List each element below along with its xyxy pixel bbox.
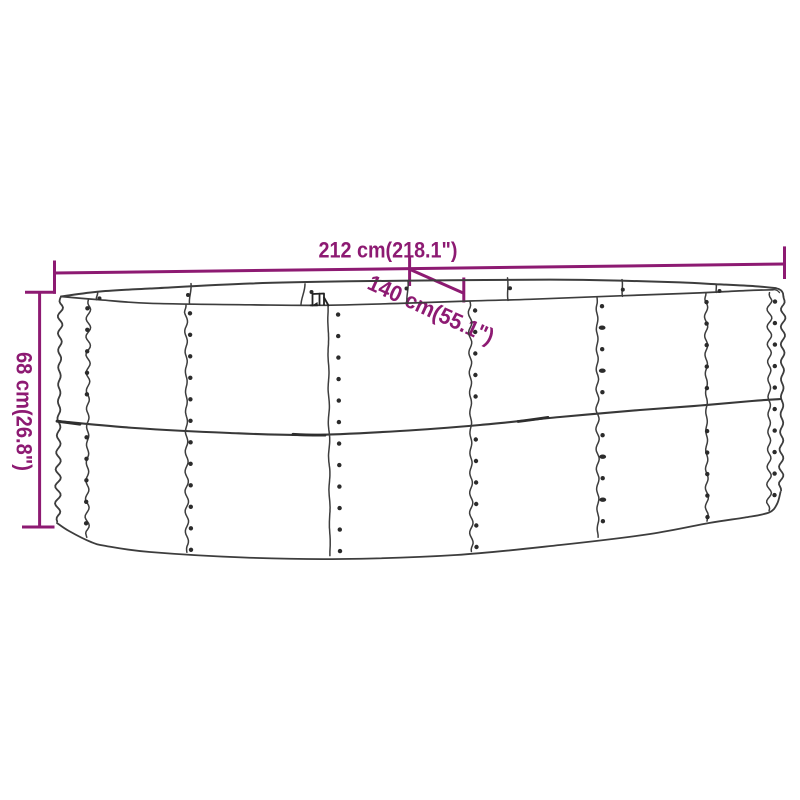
svg-text:68 cm(26.8"): 68 cm(26.8") xyxy=(12,352,37,471)
svg-text:212 cm(218.1"): 212 cm(218.1") xyxy=(319,238,458,263)
